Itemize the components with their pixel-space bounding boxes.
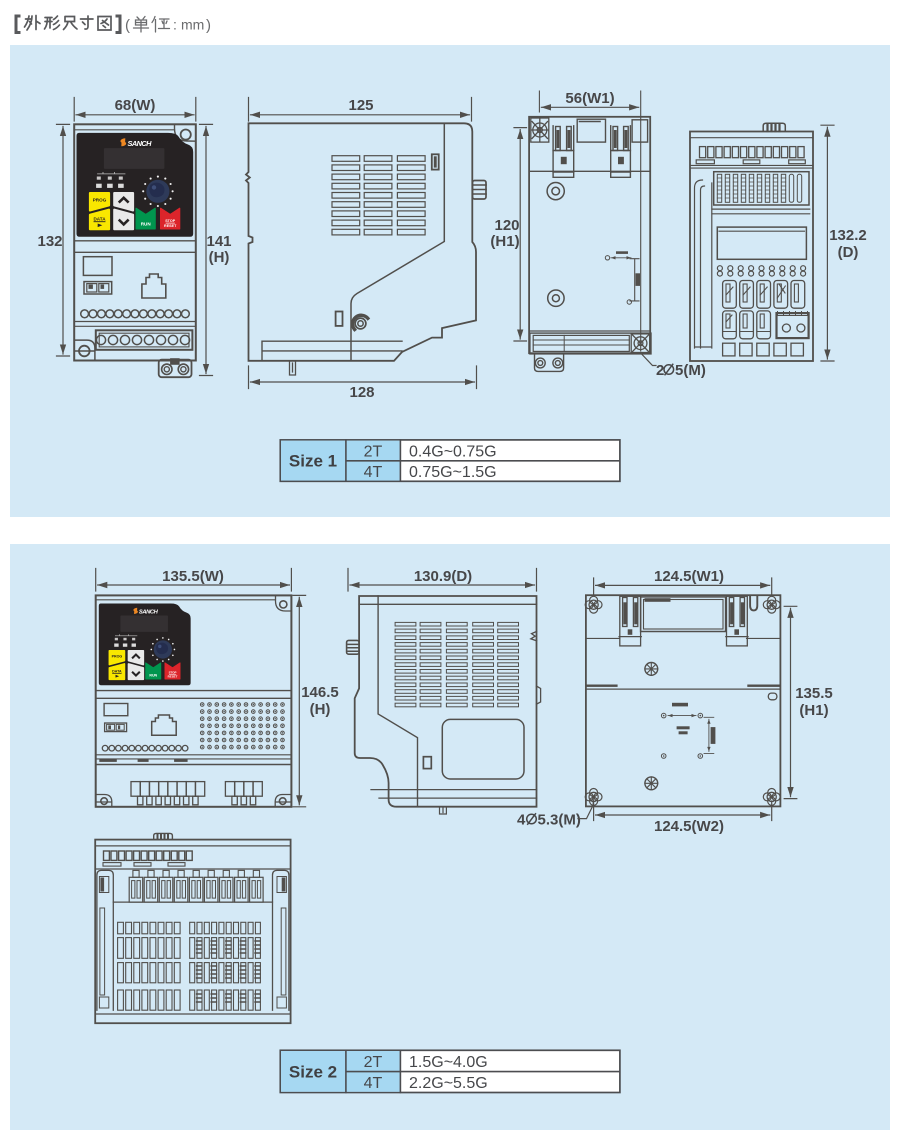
svg-text:(D): (D) [838, 244, 859, 261]
svg-text:5(M): 5(M) [675, 362, 706, 379]
svg-text:135.5(W): 135.5(W) [162, 568, 224, 585]
svg-text:0.75G~1.5G: 0.75G~1.5G [409, 464, 497, 481]
svg-text:124.5(W1): 124.5(W1) [654, 568, 724, 585]
svg-text:2: 2 [656, 362, 664, 379]
svg-text:(H1): (H1) [490, 233, 519, 250]
svg-text:56(W1): 56(W1) [565, 90, 614, 107]
svg-text::: : [173, 17, 177, 33]
svg-text:(H): (H) [209, 249, 230, 266]
svg-text:4T: 4T [364, 464, 383, 481]
svg-text:0.4G~0.75G: 0.4G~0.75G [409, 443, 497, 460]
svg-text:mm: mm [181, 17, 204, 33]
svg-text:68(W): 68(W) [115, 97, 156, 114]
svg-text:(H): (H) [310, 701, 331, 718]
svg-text:5.3(M): 5.3(M) [538, 812, 581, 829]
svg-text:132.2: 132.2 [829, 227, 867, 244]
svg-text:Size 2: Size 2 [289, 1062, 337, 1081]
svg-text:135.5: 135.5 [795, 685, 833, 702]
svg-text:Size 1: Size 1 [289, 452, 337, 471]
svg-text:): ) [206, 17, 211, 34]
svg-text:2.2G~5.5G: 2.2G~5.5G [409, 1075, 488, 1092]
svg-text:132: 132 [37, 233, 62, 250]
svg-text:124.5(W2): 124.5(W2) [654, 818, 724, 835]
svg-text:130.9(D): 130.9(D) [414, 568, 472, 585]
svg-text:4: 4 [517, 812, 526, 829]
svg-text:128: 128 [349, 384, 374, 401]
svg-text:(H1): (H1) [799, 702, 828, 719]
svg-text:120: 120 [494, 217, 519, 234]
svg-text:2T: 2T [364, 443, 383, 460]
svg-text:1.5G~4.0G: 1.5G~4.0G [409, 1054, 488, 1071]
svg-text:125: 125 [348, 97, 373, 114]
svg-text:(: ( [125, 17, 130, 34]
svg-text:146.5: 146.5 [301, 684, 339, 701]
svg-text:4T: 4T [364, 1075, 383, 1092]
svg-text:2T: 2T [364, 1054, 383, 1071]
svg-text:141: 141 [206, 233, 231, 250]
